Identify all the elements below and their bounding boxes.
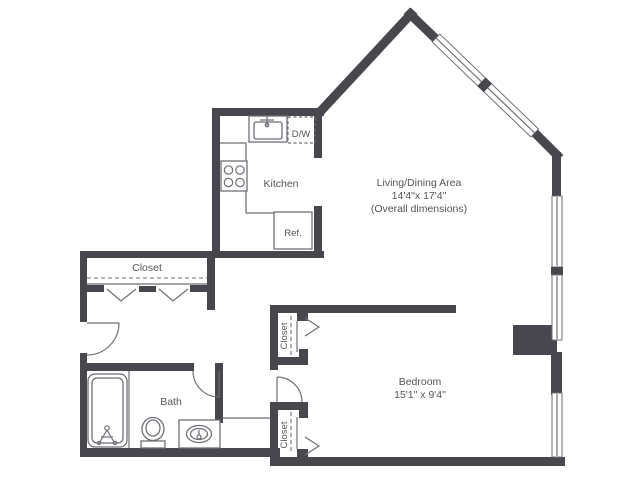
floor-plan-image: Closet D/W Ref. Kitchen Living/ (0, 0, 640, 480)
vanity-sink-icon (179, 420, 220, 448)
ne-wall-apex-segment (410, 14, 437, 40)
bedroom-dimensions: 15'1" x 9'4" (394, 389, 446, 401)
kitchen-sink-icon (249, 116, 287, 142)
closet-front-stub (190, 285, 210, 292)
living-area-label: Living/Dining Area (377, 177, 462, 189)
bath-bottom-wall (80, 448, 280, 457)
dishwasher-icon: D/W (288, 117, 315, 143)
dishwasher-label: D/W (292, 129, 311, 140)
refrigerator-label: Ref. (284, 228, 301, 239)
bath-top-wall (80, 363, 194, 371)
right-wall-upper (552, 152, 561, 198)
entry-door-icon (87, 323, 119, 355)
diagonal-window (432, 34, 539, 138)
closet-stub (297, 313, 308, 321)
window-mullion (551, 267, 563, 275)
bathtub-icon (88, 374, 127, 447)
toilet-icon (141, 418, 165, 449)
hall-closet: Closet (87, 262, 207, 301)
bedroom: Bedroom 15'1" x 9'4" Closet Closet (279, 316, 446, 455)
living-area-note: (Overall dimensions) (371, 203, 467, 215)
bedroom-closet-bottom-label: Closet (279, 421, 290, 448)
refrigerator-icon: Ref. (274, 212, 312, 249)
bedroom-bottom-wall (270, 457, 565, 466)
kitchen-top-wall (212, 108, 324, 116)
living-area-dimensions: 14'4"x 17'4" (392, 190, 447, 202)
closet-stub (299, 349, 308, 365)
windows (432, 34, 563, 457)
right-wall-mid (551, 352, 562, 395)
nw-diagonal-wall (319, 14, 411, 113)
bath-label: Bath (160, 396, 182, 408)
bedroom-closet-top-label: Closet (279, 322, 290, 349)
stove-icon (221, 161, 247, 191)
bedroom-label: Bedroom (399, 376, 442, 388)
hall-closet-label: Closet (132, 262, 162, 274)
bedroom-top-wall (270, 305, 456, 313)
kitchen-label: Kitchen (263, 178, 298, 190)
closet-kitchen-bottom-wall (80, 251, 324, 258)
closet-front-stub (80, 285, 104, 292)
exterior-walls (80, 14, 565, 466)
interior-walls (80, 114, 456, 466)
kitchen: D/W Ref. Kitchen (220, 116, 315, 249)
living-dining-area: Living/Dining Area 14'4"x 17'4" (Overall… (371, 177, 467, 215)
kitchen-left-wall (212, 108, 220, 258)
structural-column (513, 325, 557, 355)
floor-plan-svg: Closet D/W Ref. Kitchen Living/ (0, 0, 640, 480)
bedroom-door-icon (277, 377, 302, 402)
ne-wall-lower-segment (534, 132, 557, 155)
closet-stub (299, 402, 308, 418)
bedroom-left-wall-lower (270, 402, 278, 466)
closet-front-stub (139, 286, 156, 292)
bath: Bath (88, 371, 270, 448)
bifold-door-icon (107, 289, 136, 301)
bedroom-closet-bottom: Closet (279, 412, 319, 455)
kitchen-stub-lower (314, 206, 322, 257)
hall-closet-right-wall (207, 258, 215, 310)
bifold-door-icon (159, 289, 188, 301)
